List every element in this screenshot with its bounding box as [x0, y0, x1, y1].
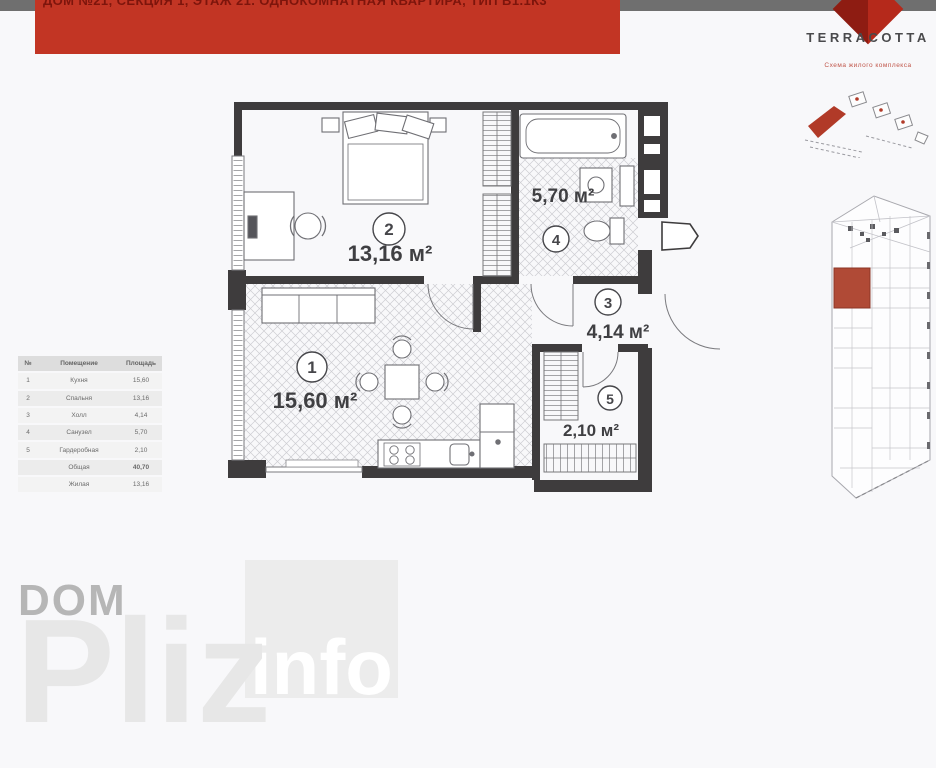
- room-4-area: 5,70 м²: [532, 186, 595, 207]
- title-banner: ДОМ №21, СЕКЦИЯ 1, ЭТАЖ 21. ОДНОКОМНАТНА…: [35, 0, 620, 54]
- room-4-number: 4: [552, 232, 561, 249]
- site-scheme-red-building: [808, 106, 846, 138]
- banner-title: ДОМ №21, СЕКЦИЯ 1, ЭТАЖ 21. ОДНОКОМНАТНА…: [43, 0, 616, 8]
- nightstand-left: [322, 118, 339, 132]
- col-num: №: [18, 360, 38, 367]
- bathroom-door: [531, 284, 573, 326]
- shaft-strip: [483, 112, 511, 276]
- kitchen-bottom-window: [266, 467, 362, 472]
- dining-table: [385, 365, 419, 399]
- entry-door-leaf: [662, 222, 698, 250]
- room-3-number: 3: [604, 295, 612, 312]
- col-area: Площадь: [120, 360, 162, 367]
- toilet-tank: [610, 218, 624, 244]
- brand-tagline: Схема жилого комплекса: [798, 62, 936, 69]
- desk-monitor: [248, 216, 257, 238]
- table-row-living: Жилая13,16: [18, 477, 162, 494]
- col-room: Помещение: [38, 360, 120, 367]
- wardrobe-door: [583, 352, 618, 387]
- window-sill: [286, 460, 358, 467]
- chair: [360, 373, 378, 391]
- floor-plan: 1 15,60 м² 2 13,16 м² 3 4,14 м² 4 5,70 м…: [228, 88, 728, 494]
- table-row: 5Гардеробная2,10: [18, 442, 162, 459]
- desk-chair: [295, 213, 321, 239]
- highlighted-unit: [834, 268, 870, 308]
- site-scheme-roads: [805, 136, 912, 158]
- table-row: 4Санузел5,70: [18, 425, 162, 442]
- bedroom-window: [234, 157, 243, 269]
- chair: [393, 340, 411, 358]
- toilet: [584, 221, 610, 241]
- bedroom-furniture: [244, 112, 446, 260]
- watermark-dom: DOM: [18, 576, 127, 626]
- sofa: [262, 288, 375, 323]
- table-header-row: № Помещение Площадь: [18, 356, 162, 373]
- bath-sink: [620, 166, 634, 206]
- fridge: [480, 404, 514, 468]
- table-row-total: Общая40,70: [18, 460, 162, 477]
- table-row: 1Кухня15,60: [18, 373, 162, 390]
- stove: [384, 443, 420, 466]
- table-row: 2Спальня13,16: [18, 391, 162, 408]
- table-row: 3Холл4,14: [18, 408, 162, 425]
- entry-door-arc: [665, 294, 720, 349]
- chair: [426, 373, 444, 391]
- room-5-number: 5: [606, 391, 614, 407]
- room-2-number: 2: [384, 220, 393, 239]
- kitchen-sink: [450, 444, 469, 465]
- watermark-info: info: [250, 628, 393, 706]
- room-1-number: 1: [307, 358, 316, 377]
- building-level-plan: [810, 192, 934, 502]
- chair: [393, 406, 411, 424]
- room-3-area: 4,14 м²: [587, 322, 650, 343]
- room-1-area: 15,60 м²: [273, 388, 358, 413]
- rooms-table: № Помещение Площадь 1Кухня15,60 2Спальня…: [18, 356, 162, 494]
- brand-name: TERRACOTTA: [798, 30, 936, 45]
- room-5-area: 2,10 м²: [563, 421, 619, 440]
- kitchen-side-window: [234, 311, 243, 459]
- site-scheme: [800, 80, 936, 158]
- site-scheme-buildings: [849, 92, 928, 144]
- page: ДОМ №21, СЕКЦИЯ 1, ЭТАЖ 21. ОДНОКОМНАТНА…: [0, 0, 936, 768]
- room-2-area: 13,16 м²: [348, 241, 433, 266]
- wardrobe-shelving: [544, 352, 636, 472]
